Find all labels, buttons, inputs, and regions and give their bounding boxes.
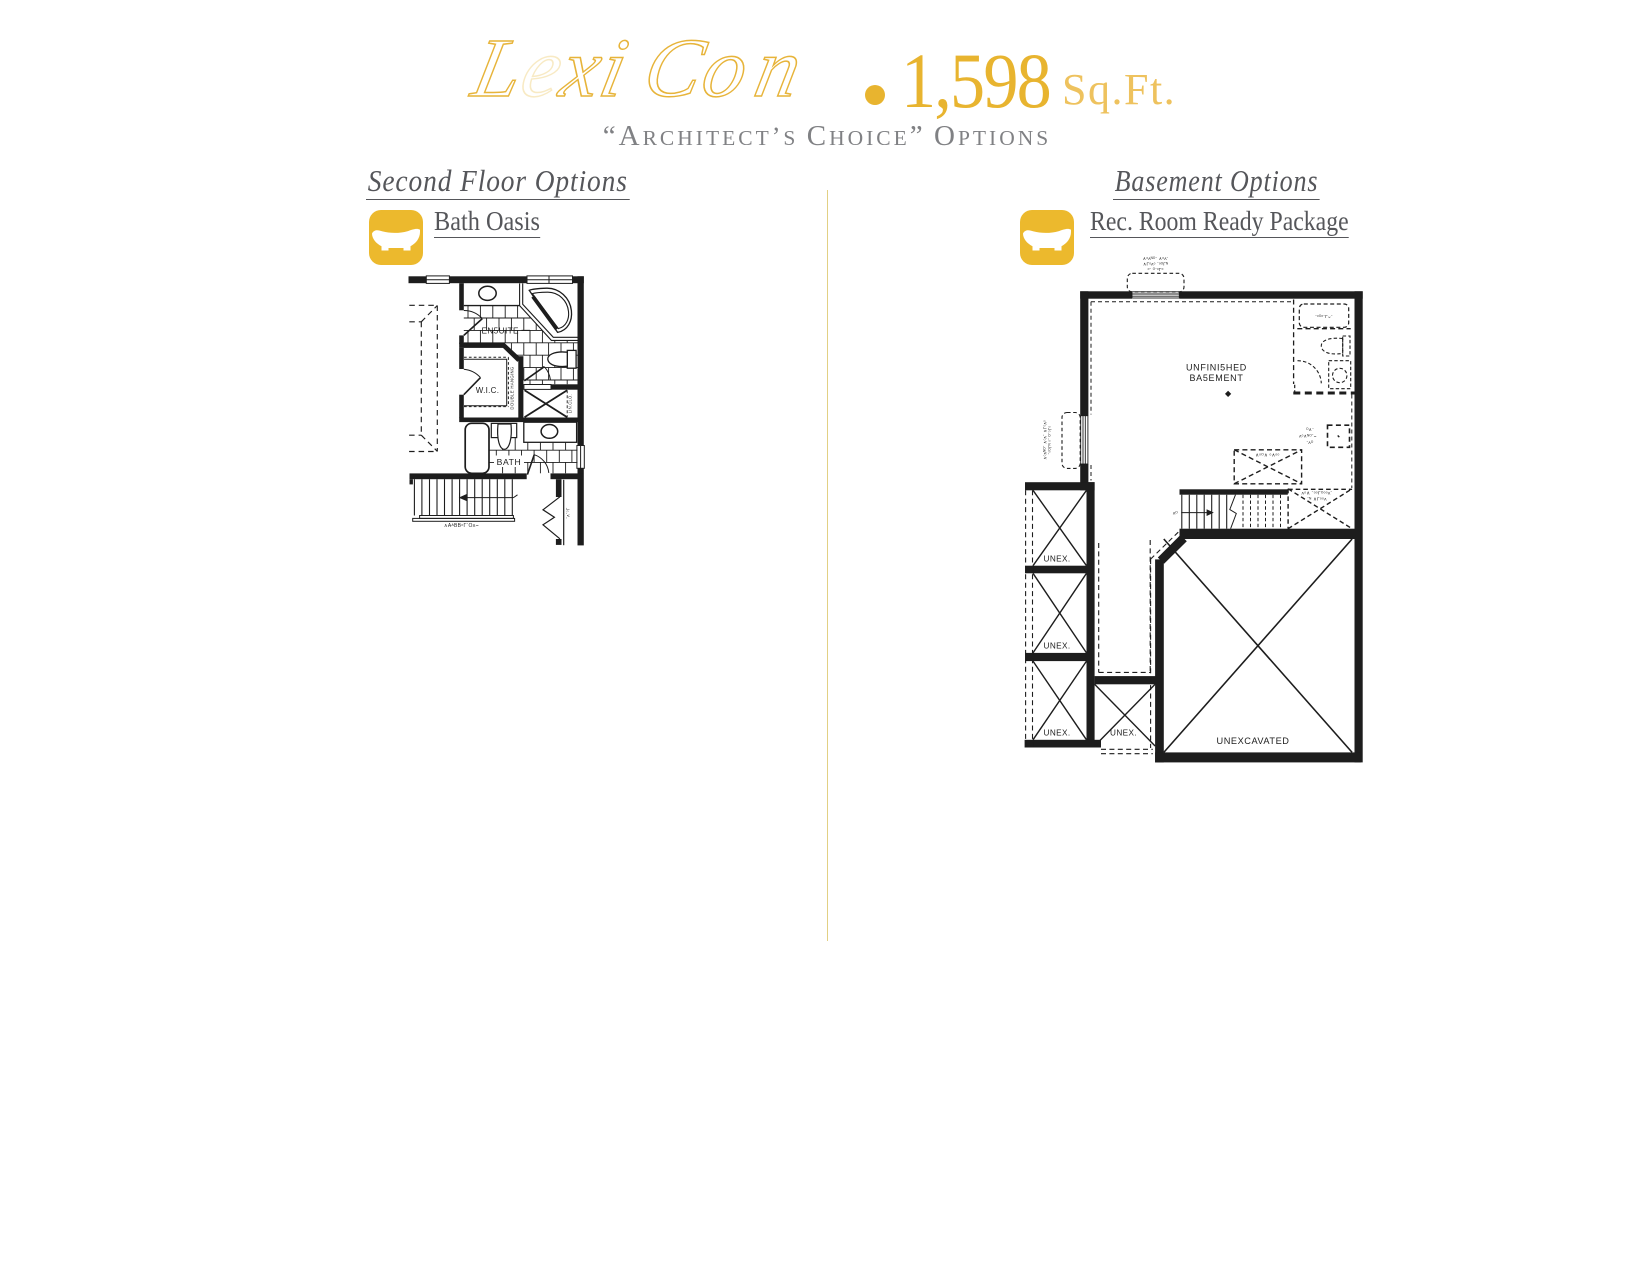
svg-text:∧Γᵒʌᵒ ˉᵒᴼΓᴺ: ∧Γᵒʌᵒ ˉᵒᴼΓᴺ (1143, 261, 1168, 266)
svg-text:DOUBLE HANGING: DOUBLE HANGING (510, 366, 515, 409)
svg-text:ʌᵒ∧ ˉᵒᵒΓᴼᵒᵒʌˉ: ʌᵒ∧ ˉᵒᵒΓᴼᵒᵒʌˉ (1302, 491, 1333, 497)
svg-text:∧AᴬBBᵒΓˉOʌ⌣: ∧AᴬBBᵒΓˉOʌ⌣ (444, 523, 479, 529)
svg-text:ᴼ∧ˉ: ᴼ∧ˉ (1306, 427, 1314, 432)
svg-text:UNEX.: UNEX. (1044, 642, 1071, 651)
svg-text:UNFINI5HED: UNFINI5HED (1186, 363, 1247, 373)
svg-text:UNEXCAVATED: UNEXCAVATED (1217, 736, 1290, 746)
svg-text:EN5UITE: EN5UITE (482, 326, 520, 335)
svg-text:BA5EMENT: BA5EMENT (1189, 373, 1243, 383)
svg-text:W.I.C.: W.I.C. (476, 386, 500, 395)
svg-text:ˉʌˉᵒΓ: ˉʌˉᵒΓ (566, 507, 571, 518)
svg-text:ˉᴺ ∧Γᵒᵒʌ: ˉᴺ ∧Γᵒᵒʌ (1307, 497, 1327, 503)
svg-text:ʌᴼ: ʌᴼ (1173, 511, 1178, 517)
svg-text:UNEX.: UNEX. (1044, 729, 1071, 738)
svg-text:BATH: BATH (497, 457, 522, 467)
svg-text:LIN.CLO.: LIN.CLO. (568, 394, 573, 413)
svg-text:ᵒˉ ᴼˉᵒΓᵒ: ᵒˉ ᴼˉᵒΓᵒ (1148, 267, 1164, 272)
svg-text:UNEX.: UNEX. (1044, 555, 1071, 564)
svg-text:∧ᵒʌᴺᴼˉ ∧ᵒʌˉ: ∧ᵒʌᴺᴼˉ ∧ᵒʌˉ (1143, 256, 1169, 261)
svg-text:ˉᵒᴼᵒˉΓ⌣ˉ: ˉᵒᴼᵒˉΓ⌣ˉ (1315, 314, 1333, 319)
svg-text:UNEX.: UNEX. (1110, 729, 1137, 738)
svg-text:ˉʌᴼ: ˉʌᴼ (1307, 440, 1314, 445)
svg-text:ʌᵒ∧ᴺᴼˉ⌣: ʌᵒ∧ᴺᴼˉ⌣ (1299, 434, 1317, 439)
svg-text:ˉᵒᴼΓᴺ ᵒˉ ᴼˉᵒΓᵒ: ˉᵒᴼΓᴺ ᵒˉ ᴼˉᵒΓᵒ (1048, 426, 1053, 455)
svg-text:∧ᵒᴼ∧ ᵒ∧ᵒᵒ: ∧ᵒᴼ∧ ᵒ∧ᵒᵒ (1255, 452, 1279, 458)
